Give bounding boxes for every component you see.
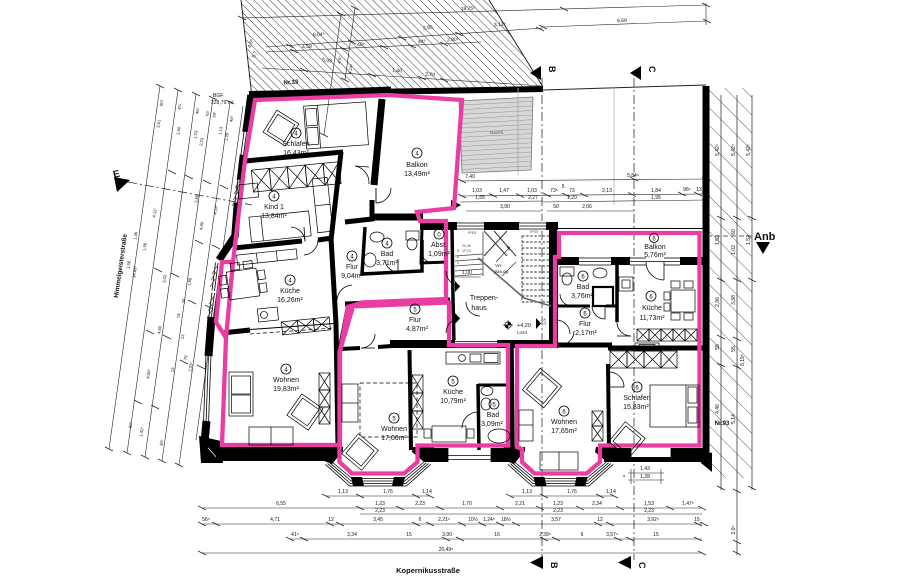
svg-text:45⁵: 45⁵ <box>195 107 201 114</box>
svg-text:IPE5: IPE5 <box>530 230 538 234</box>
svg-text:20,9k: 20,9k <box>462 244 471 248</box>
svg-text:2,79: 2,79 <box>425 72 435 79</box>
svg-text:96⁵: 96⁵ <box>683 187 691 193</box>
svg-text:1,52: 1,52 <box>715 235 721 245</box>
svg-text:1,47: 1,47 <box>499 188 509 194</box>
svg-text:Küche: Küche <box>642 305 662 312</box>
svg-text:55: 55 <box>715 344 721 350</box>
svg-text:1,24⁵: 1,24⁵ <box>483 517 495 523</box>
svg-text:1,00: 1,00 <box>462 270 472 276</box>
svg-text:Wohnen: Wohnen <box>551 419 577 426</box>
svg-text:IPE5: IPE5 <box>468 231 476 235</box>
svg-text:BGF: BGF <box>213 93 223 99</box>
svg-text:2,23: 2,23 <box>644 508 654 514</box>
svg-text:Treppen-: Treppen- <box>470 295 499 302</box>
svg-text:2,23: 2,23 <box>375 508 385 514</box>
svg-text:B: B <box>547 66 557 73</box>
svg-text:Nr.93: Nr.93 <box>715 421 730 427</box>
svg-text:12: 12 <box>597 517 603 523</box>
svg-text:1P24: 1P24 <box>462 249 471 253</box>
svg-text:13: 13 <box>696 187 702 193</box>
svg-text:15: 15 <box>406 532 412 538</box>
svg-text:1,84: 1,84 <box>651 188 661 194</box>
svg-text:5: 5 <box>562 184 565 190</box>
svg-text:9,04m²: 9,04m² <box>341 273 363 280</box>
svg-text:2,17m²: 2,17m² <box>575 330 597 337</box>
svg-text:Schlafen: Schlafen <box>623 395 650 402</box>
svg-text:2,85: 2,85 <box>423 25 433 32</box>
svg-text:18½: 18½ <box>501 516 512 523</box>
svg-text:2,27: 2,27 <box>528 195 538 201</box>
svg-text:17,65m²: 17,65m² <box>551 428 577 435</box>
svg-text:1,09m²: 1,09m² <box>428 251 450 258</box>
svg-text:1,03: 1,03 <box>527 188 537 194</box>
svg-text:18,75⁵: 18,75⁵ <box>461 6 476 13</box>
svg-text:1,40: 1,40 <box>392 68 402 75</box>
svg-text:Kopernikusstraße: Kopernikusstraße <box>396 566 460 575</box>
svg-text:3,76m²: 3,76m² <box>571 293 593 300</box>
svg-text:1,55: 1,55 <box>475 195 485 201</box>
svg-text:19,83m²: 19,83m² <box>273 386 299 393</box>
svg-text:Bad: Bad <box>381 251 394 258</box>
svg-text:2,21⁵: 2,21⁵ <box>438 517 450 523</box>
svg-text:Wohnen: Wohnen <box>381 426 407 433</box>
svg-text:2,23: 2,23 <box>415 501 425 507</box>
svg-text:2,13: 2,13 <box>602 188 612 194</box>
svg-text:Kind 1: Kind 1 <box>264 204 284 211</box>
svg-text:1,47⁵: 1,47⁵ <box>682 501 694 507</box>
svg-text:C: C <box>647 66 657 73</box>
svg-text:56⁵: 56⁵ <box>202 517 210 523</box>
svg-text:3,92⁵: 3,92⁵ <box>647 517 659 523</box>
svg-text:55: 55 <box>731 346 737 352</box>
svg-text:Anb: Anb <box>754 231 776 243</box>
svg-text:4,59: 4,59 <box>302 44 312 51</box>
svg-text:70⁵: 70⁵ <box>205 110 211 117</box>
svg-text:Dachfl.: Dachfl. <box>490 130 504 135</box>
svg-text:4,71: 4,71 <box>270 517 280 523</box>
svg-text:73⁵: 73⁵ <box>550 188 558 194</box>
svg-text:Ver-: Ver- <box>495 263 503 268</box>
svg-text:3,71m²: 3,71m² <box>376 260 398 267</box>
svg-text:44⁵: 44⁵ <box>229 115 235 122</box>
svg-text:1,23: 1,23 <box>375 501 385 507</box>
svg-text:4,46: 4,46 <box>715 404 721 414</box>
svg-text:15: 15 <box>694 517 700 523</box>
svg-text:Flur: Flur <box>409 317 422 324</box>
svg-text:5,14: 5,14 <box>731 414 737 424</box>
svg-text:ü.: ü. <box>623 473 626 478</box>
svg-text:1,14: 1,14 <box>422 489 432 495</box>
svg-text:3,45: 3,45 <box>373 517 383 523</box>
svg-text:3,90: 3,90 <box>500 204 510 210</box>
svg-text:Wohnen: Wohnen <box>273 377 299 384</box>
svg-text:16: 16 <box>494 532 500 538</box>
svg-text:15,83m²: 15,83m² <box>623 404 649 411</box>
svg-text:12: 12 <box>328 517 334 523</box>
svg-text:1,52: 1,52 <box>746 235 752 245</box>
svg-text:haus: haus <box>471 305 487 312</box>
svg-text:6,68: 6,68 <box>617 18 627 24</box>
svg-text:17,60m²: 17,60m² <box>381 435 407 442</box>
svg-text:1: 1 <box>457 261 459 265</box>
svg-text:Küche: Küche <box>443 389 463 396</box>
svg-text:13,49m²: 13,49m² <box>404 171 430 178</box>
svg-text:B: B <box>549 562 559 569</box>
svg-text:3,90: 3,90 <box>442 532 452 538</box>
svg-text:40⁵: 40⁵ <box>357 42 365 48</box>
svg-text:79⁷: 79⁷ <box>212 111 218 118</box>
svg-text:30⁵: 30⁵ <box>159 439 165 446</box>
svg-text:6: 6 <box>419 517 422 523</box>
svg-text:1,13: 1,13 <box>338 489 348 495</box>
svg-text:20,49⁵: 20,49⁵ <box>439 547 454 553</box>
svg-text:60⁵: 60⁵ <box>159 99 165 106</box>
svg-text:6,04⁵: 6,04⁵ <box>313 32 325 39</box>
svg-text:2,39⁵: 2,39⁵ <box>539 532 551 538</box>
svg-text:2,21: 2,21 <box>515 501 525 507</box>
svg-text:1,53: 1,53 <box>644 501 654 507</box>
svg-text:Bad: Bad <box>577 284 590 291</box>
svg-text:Lü34: Lü34 <box>517 330 528 335</box>
svg-text:1,13: 1,13 <box>522 489 532 495</box>
svg-text:5,84⁵: 5,84⁵ <box>627 173 639 179</box>
svg-text:41⁵: 41⁵ <box>291 532 299 538</box>
svg-text:5,42⁵: 5,42⁵ <box>731 144 737 156</box>
svg-text:16,26m²: 16,26m² <box>277 297 303 304</box>
svg-text:3,12⁴: 3,12⁴ <box>494 22 506 29</box>
svg-text:73: 73 <box>569 188 575 194</box>
svg-text:1,03: 1,03 <box>472 188 482 194</box>
svg-text:4,87m²: 4,87m² <box>406 326 428 333</box>
svg-text:2,06: 2,06 <box>582 204 592 210</box>
svg-text:glasung: glasung <box>494 269 509 274</box>
svg-text:3,57: 3,57 <box>551 517 561 523</box>
svg-text:1,14: 1,14 <box>606 489 616 495</box>
svg-text:15: 15 <box>653 532 659 538</box>
svg-text:C: C <box>637 562 647 569</box>
svg-text:10½: 10½ <box>468 516 479 523</box>
svg-text:8,19⁵: 8,19⁵ <box>740 354 746 366</box>
svg-text:2,0⁵: 2,0⁵ <box>731 525 737 534</box>
svg-text:50: 50 <box>553 204 559 210</box>
svg-text:2,96: 2,96 <box>715 297 721 307</box>
svg-text:Abst.: Abst. <box>431 242 447 249</box>
svg-text:60: 60 <box>731 229 737 235</box>
svg-text:Küche: Küche <box>280 288 300 295</box>
svg-text:1,23: 1,23 <box>553 501 563 507</box>
svg-text:2,34: 2,34 <box>592 501 602 507</box>
svg-text:2: 2 <box>457 255 459 259</box>
svg-text:1,76: 1,76 <box>567 489 577 495</box>
svg-text:16,43m²: 16,43m² <box>283 150 309 157</box>
svg-text:10,79m²: 10,79m² <box>440 398 466 405</box>
svg-text:7,40: 7,40 <box>465 174 475 180</box>
svg-text:5,42⁵: 5,42⁵ <box>715 144 721 156</box>
svg-text:228,79 m²: 228,79 m² <box>211 100 234 106</box>
svg-text:3,57⁵: 3,57⁵ <box>606 532 618 538</box>
svg-text:Nr.33: Nr.33 <box>283 79 299 86</box>
svg-text:11,73m²: 11,73m² <box>639 315 665 322</box>
svg-text:1,76: 1,76 <box>383 489 393 495</box>
svg-text:1,43: 1,43 <box>640 466 650 472</box>
svg-text:Balkon: Balkon <box>644 244 666 251</box>
svg-text:3,34: 3,34 <box>347 532 357 538</box>
svg-text:1,20: 1,20 <box>567 195 577 201</box>
svg-text:3: 3 <box>457 249 459 253</box>
svg-text:5,76m²: 5,76m² <box>644 252 666 259</box>
svg-text:6,55: 6,55 <box>276 501 286 507</box>
svg-text:2,0⁵: 2,0⁵ <box>542 317 547 325</box>
svg-text:1,02: 1,02 <box>731 245 737 255</box>
svg-text:3,38: 3,38 <box>731 295 737 305</box>
svg-text:2,80⁵: 2,80⁵ <box>447 37 459 44</box>
svg-text:1,28: 1,28 <box>640 474 650 480</box>
svg-text:5,42⁵: 5,42⁵ <box>746 144 752 156</box>
svg-text:6: 6 <box>581 532 584 538</box>
svg-text:1,70: 1,70 <box>462 501 472 507</box>
svg-text:44⁵: 44⁵ <box>418 39 426 45</box>
svg-text:50⁵: 50⁵ <box>128 421 134 428</box>
svg-text:Balkon: Balkon <box>406 162 428 169</box>
svg-text:+4,20: +4,20 <box>517 323 531 329</box>
svg-text:Bad: Bad <box>487 412 500 419</box>
svg-text:2,23: 2,23 <box>553 508 563 514</box>
svg-text:3,09m²: 3,09m² <box>481 421 503 428</box>
svg-text:Flur: Flur <box>579 321 592 328</box>
svg-text:Flur: Flur <box>346 264 359 271</box>
svg-text:Schlafen: Schlafen <box>282 141 309 148</box>
svg-text:5,03: 5,03 <box>322 58 332 65</box>
svg-text:1,95: 1,95 <box>651 195 661 201</box>
svg-text:13,84m²: 13,84m² <box>261 213 287 220</box>
